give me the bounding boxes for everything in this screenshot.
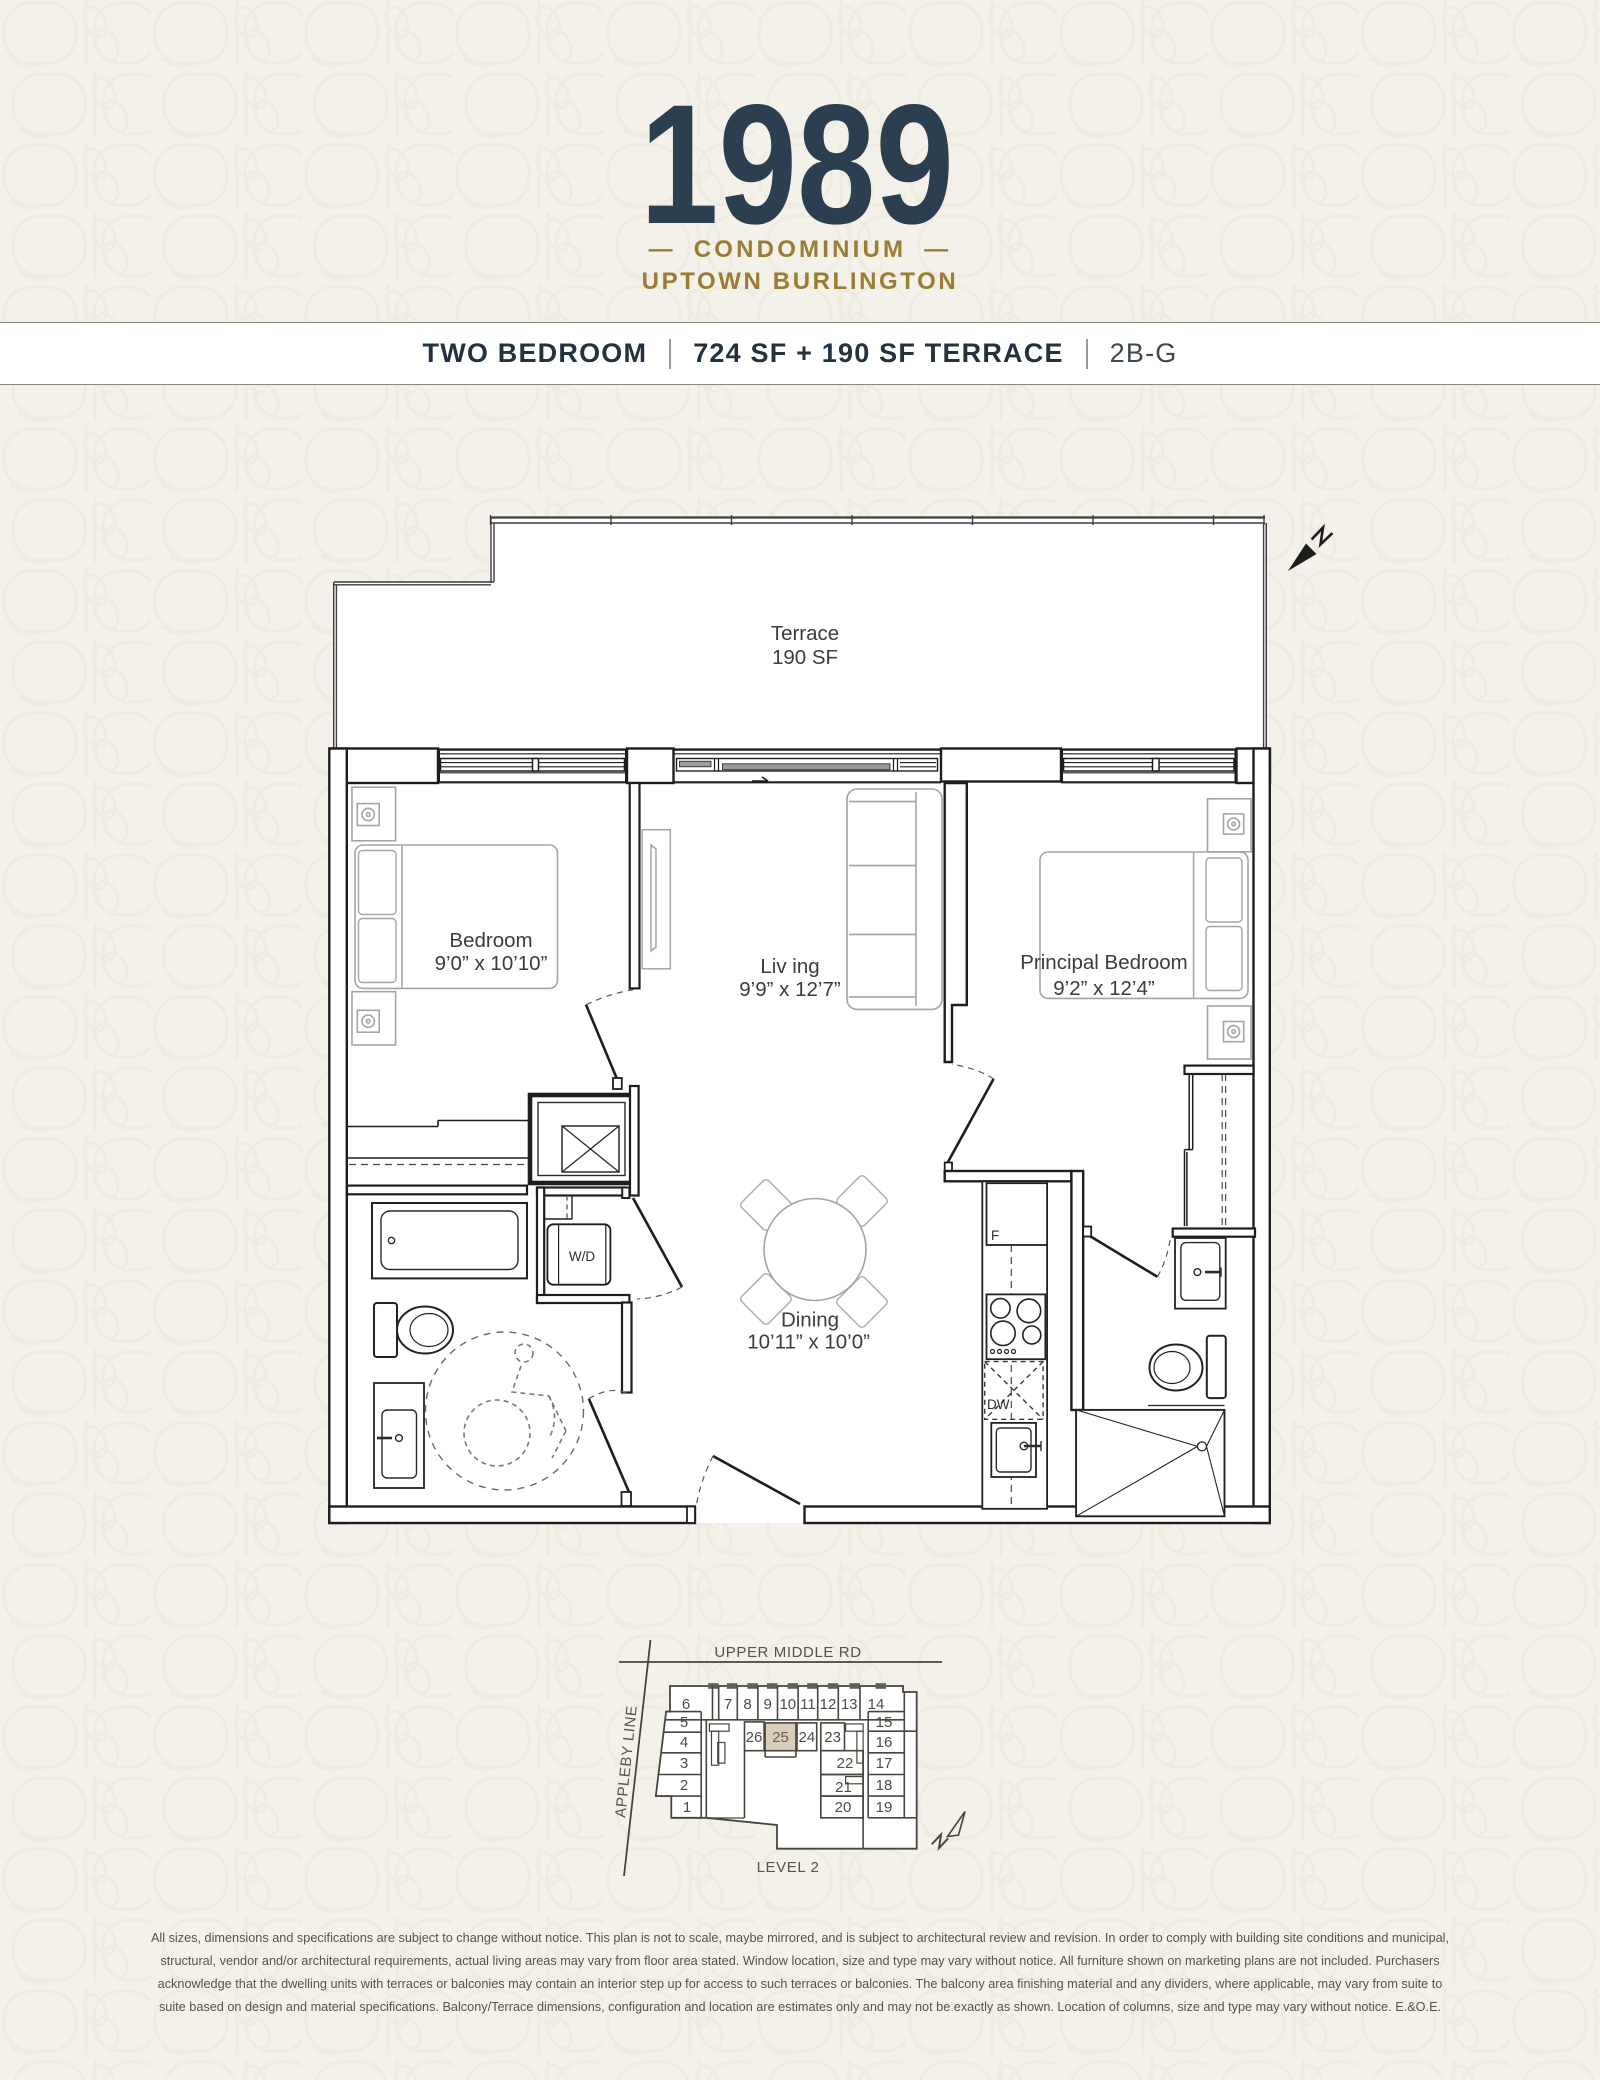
svg-text:24: 24 (799, 1729, 816, 1746)
svg-text:20: 20 (835, 1799, 852, 1816)
svg-text:22: 22 (837, 1755, 854, 1772)
svg-text:Dining: Dining (781, 1309, 839, 1332)
svg-text:2: 2 (680, 1777, 688, 1794)
svg-text:6: 6 (682, 1696, 690, 1713)
svg-text:4: 4 (680, 1734, 688, 1751)
svg-text:19: 19 (876, 1799, 893, 1816)
svg-text:11: 11 (800, 1696, 816, 1713)
svg-text:F: F (991, 1228, 999, 1243)
svg-text:Bedroom: Bedroom (449, 929, 532, 952)
svg-text:25: 25 (772, 1729, 789, 1746)
svg-text:UPPER MIDDLE RD: UPPER MIDDLE RD (714, 1644, 861, 1661)
svg-text:Principal Bedroom: Principal Bedroom (1020, 951, 1188, 974)
svg-text:21: 21 (835, 1779, 852, 1796)
svg-text:26: 26 (746, 1729, 763, 1746)
svg-text:10: 10 (779, 1696, 796, 1713)
svg-text:23: 23 (824, 1729, 841, 1746)
svg-text:10’11” x 10’0”: 10’11” x 10’0” (747, 1330, 870, 1353)
svg-text:16: 16 (876, 1734, 893, 1751)
svg-text:17: 17 (876, 1755, 893, 1772)
svg-text:Terrace: Terrace (771, 622, 839, 645)
svg-text:LEVEL 2: LEVEL 2 (757, 1859, 820, 1876)
svg-text:DW: DW (987, 1397, 1010, 1412)
svg-text:9’2” x 12’4”: 9’2” x 12’4” (1053, 977, 1155, 1000)
svg-text:9’9” x 12’7”: 9’9” x 12’7” (739, 978, 841, 1001)
svg-text:3: 3 (680, 1755, 688, 1772)
svg-text:8: 8 (743, 1696, 751, 1713)
svg-text:7: 7 (724, 1696, 732, 1713)
svg-text:14: 14 (868, 1696, 885, 1713)
svg-text:W/D: W/D (569, 1249, 595, 1264)
svg-text:9’0” x 10’10”: 9’0” x 10’10” (435, 952, 548, 975)
svg-text:9: 9 (764, 1696, 772, 1713)
svg-text:15: 15 (876, 1714, 893, 1731)
svg-text:Liv ing: Liv ing (760, 955, 819, 978)
svg-text:18: 18 (876, 1777, 893, 1794)
svg-text:12: 12 (820, 1696, 837, 1713)
svg-text:5: 5 (680, 1714, 688, 1731)
svg-text:190 SF: 190 SF (772, 646, 838, 669)
svg-text:1: 1 (683, 1799, 691, 1816)
svg-text:13: 13 (841, 1696, 858, 1713)
